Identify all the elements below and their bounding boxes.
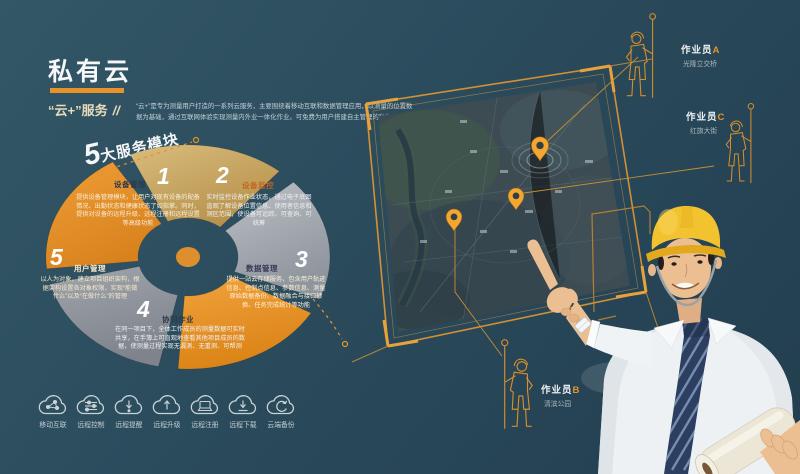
worker-a-location: 光隆立交桥 [683,58,717,68]
remote-register-icon [188,392,222,418]
footer-item-remote-control: 远程控制 [74,392,108,429]
remote-upgrade-icon [150,392,184,418]
footer-item-cloud-backup: 云端备份 [264,392,298,429]
footer-item-remote-upgrade: 远程升级 [150,392,184,429]
worker-c-letter: C [718,112,726,123]
footer-label: 云端备份 [264,419,298,429]
mobile-internet-icon [36,392,70,418]
footer-label: 移动互联 [36,419,70,429]
worker-b-location: 清滨公园 [544,398,571,408]
footer-label: 远程提醒 [112,419,146,429]
footer-label: 远程控制 [74,419,108,429]
poster: 私有云 “云+”服务// “云+”是专为测量用户打造的一系列云服务，主要围绕着移… [0,0,800,474]
footer-label: 远程升级 [150,419,184,429]
footer-icons: 移动互联 远程控制 远程提醒 远程升级 [36,392,298,429]
footer-item-remote-reminder: 远程提醒 [112,392,146,429]
worker-b-letter: B [573,385,581,396]
footer-item-mobile-internet: 移动互联 [36,392,70,429]
worker-a-letter: A [713,45,721,56]
remote-download-icon [226,392,260,418]
cloud-backup-icon [264,392,298,418]
footer-label: 远程下载 [226,419,260,429]
worker-c-location: 红旗大街 [690,125,717,135]
worker-c-label: 作业员C [686,109,725,123]
footer-label: 远程注册 [188,419,222,429]
footer-item-remote-register: 远程注册 [188,392,222,429]
worker-b-label: 作业员B [541,382,580,396]
worker-a-label: 作业员A [681,42,720,56]
remote-control-icon [74,392,108,418]
footer-item-remote-download: 远程下载 [226,392,260,429]
remote-reminder-icon [112,392,146,418]
